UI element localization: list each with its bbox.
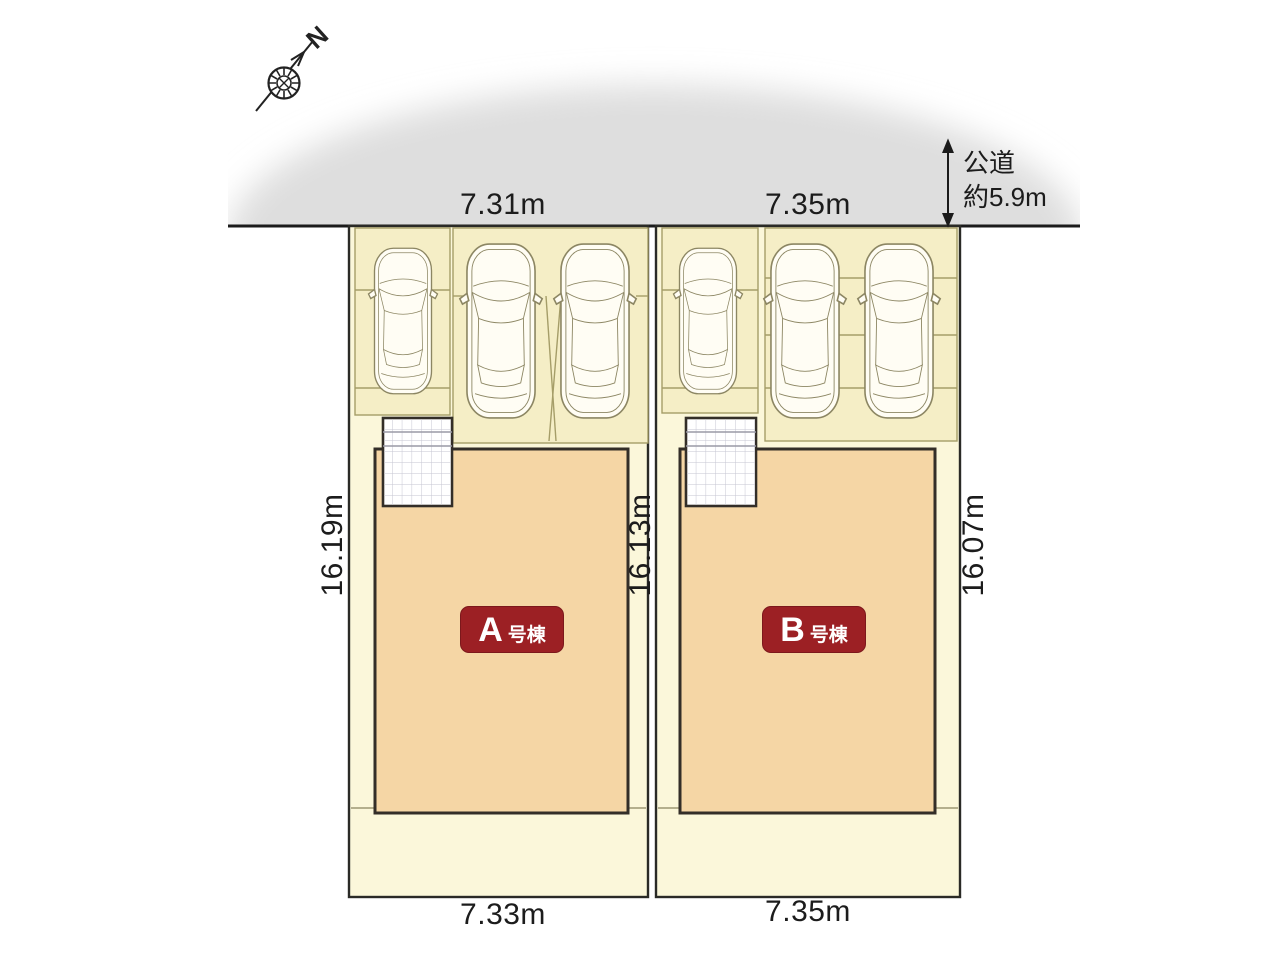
road-width-note: 約5.9m xyxy=(963,180,1047,214)
road-label: 公道 約5.9m xyxy=(963,146,1047,214)
dim-b-frontage-top: 7.35m xyxy=(718,188,898,222)
dim-b-depth-east: 16.07m xyxy=(958,483,990,607)
unit-suffix-a: 号棟 xyxy=(508,613,546,647)
dim-a-frontage-bottom: 7.33m xyxy=(413,898,593,932)
unit-badge-a: A 号棟 xyxy=(460,606,564,653)
unit-suffix-b: 号棟 xyxy=(810,613,848,647)
entrance-grid-a xyxy=(383,418,452,506)
site-plan: N 公道 約5.9m 7.31m 7.35m 16.19m 16.13m 16.… xyxy=(0,0,1280,960)
dim-a-frontage-top: 7.31m xyxy=(413,188,593,222)
dim-b-frontage-bottom: 7.35m xyxy=(718,895,898,929)
car-icon xyxy=(369,248,438,394)
car-icon xyxy=(858,244,940,418)
dim-a-depth-east: 16.13m xyxy=(625,483,657,607)
car-icon xyxy=(554,244,636,418)
unit-letter-a: A xyxy=(478,613,503,647)
compass-icon xyxy=(256,41,313,111)
unit-badge-b: B 号棟 xyxy=(762,606,866,653)
unit-letter-b: B xyxy=(780,613,805,647)
dim-a-depth-west: 16.19m xyxy=(317,483,349,607)
car-icon xyxy=(764,244,846,418)
entrance-grid-b xyxy=(686,418,756,506)
car-icon xyxy=(460,244,542,418)
car-icon xyxy=(674,248,743,394)
site-plan-drawing xyxy=(0,0,1280,960)
road-name: 公道 xyxy=(963,146,1047,180)
